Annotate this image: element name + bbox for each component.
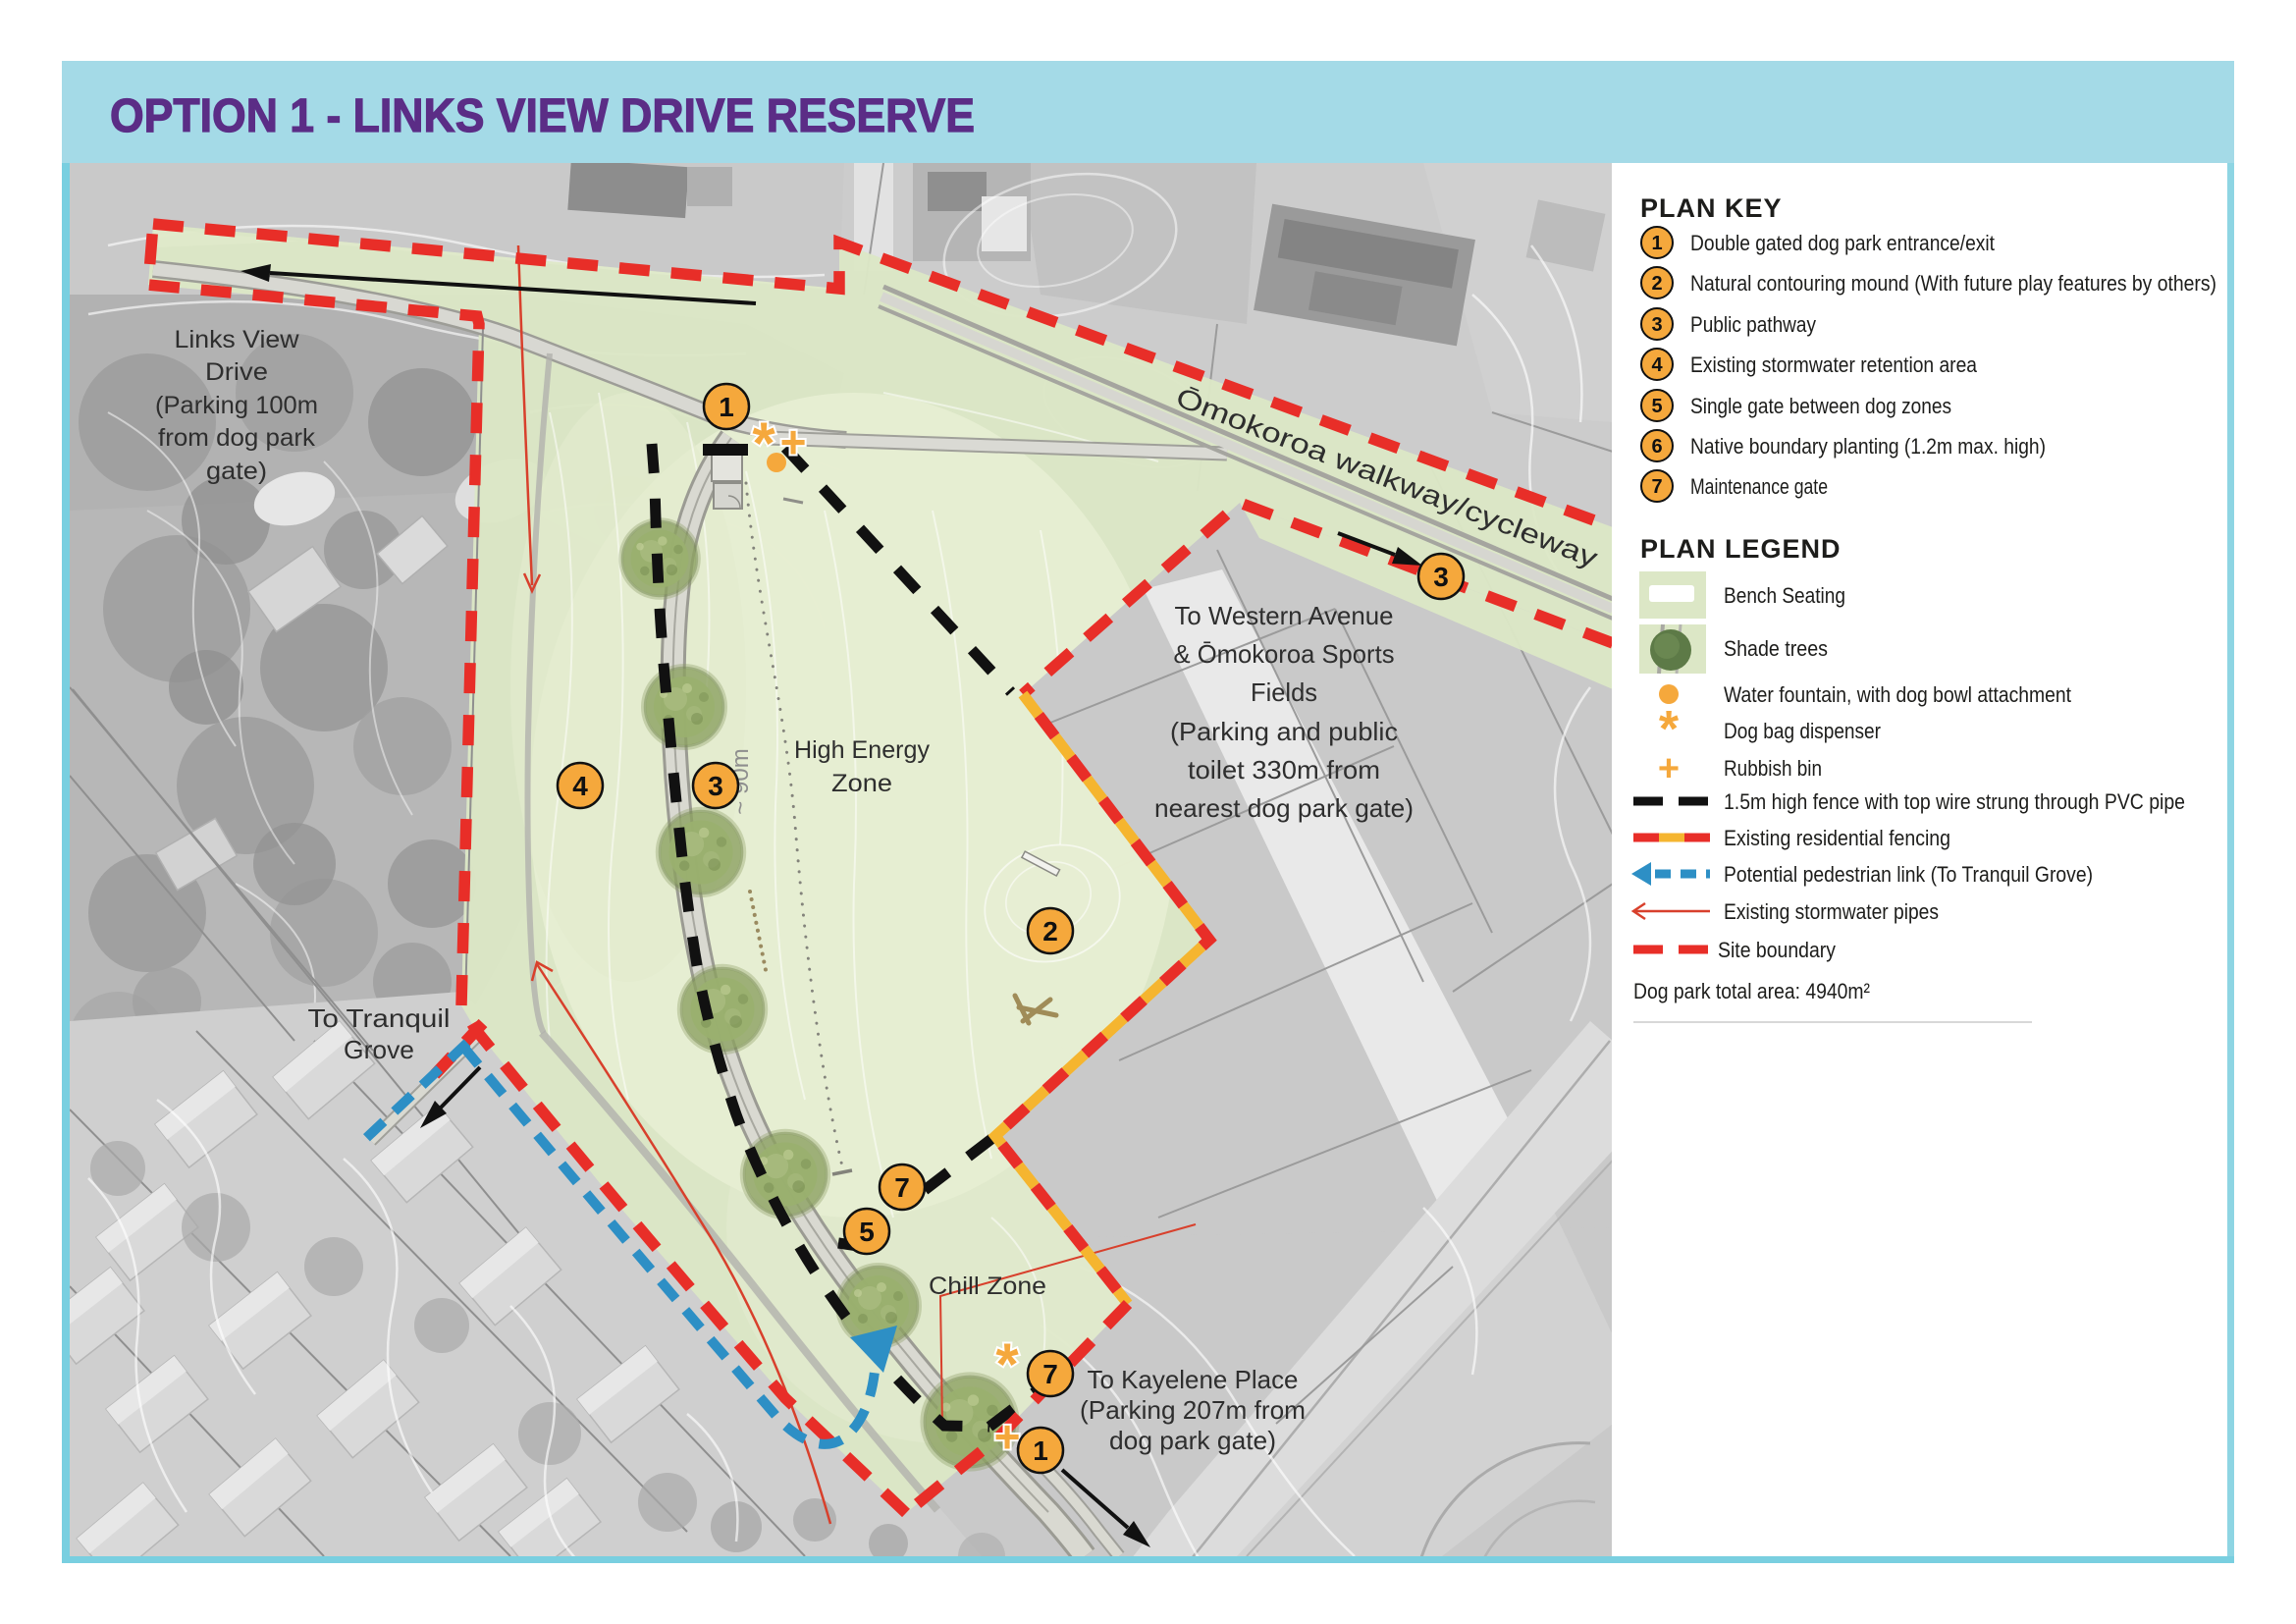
svg-text:Native boundary planting (1.2m: Native boundary planting (1.2m max. high… (1690, 434, 2046, 459)
svg-text:PLAN KEY: PLAN KEY (1640, 193, 1783, 223)
svg-text:4: 4 (572, 771, 588, 801)
svg-text:To Tranquil: To Tranquil (308, 1003, 451, 1033)
svg-text:Drive: Drive (205, 358, 268, 386)
svg-text:High Energy: High Energy (794, 736, 930, 764)
svg-text:+: + (994, 1411, 1021, 1462)
svg-text:3: 3 (1433, 562, 1449, 592)
svg-text:Bench Seating: Bench Seating (1724, 583, 1845, 608)
svg-text:Single gate between dog zones: Single gate between dog zones (1690, 394, 1951, 418)
svg-text:OPTION 1 - LINKS VIEW DRIVE RE: OPTION 1 - LINKS VIEW DRIVE RESERVE (110, 90, 975, 142)
svg-text:5: 5 (859, 1217, 875, 1247)
svg-text:Fields: Fields (1251, 677, 1317, 707)
svg-text:Existing stormwater pipes: Existing stormwater pipes (1724, 899, 1939, 924)
svg-text:Dog park total area: 4940m²: Dog park total area: 4940m² (1633, 979, 1870, 1003)
svg-text:3: 3 (1651, 314, 1662, 336)
svg-text:Maintenance gate: Maintenance gate (1690, 474, 1828, 499)
svg-text:4: 4 (1651, 354, 1663, 376)
svg-text:6: 6 (1651, 436, 1662, 458)
svg-text:Chill Zone: Chill Zone (929, 1272, 1046, 1300)
svg-text:2: 2 (1042, 916, 1058, 947)
svg-text:1: 1 (1651, 233, 1662, 254)
svg-text:7: 7 (894, 1172, 910, 1203)
svg-text:Double gated dog park entrance: Double gated dog park entrance/exit (1690, 231, 1996, 255)
svg-text:Existing residential fencing: Existing residential fencing (1724, 826, 1950, 850)
svg-text:& Ōmokoroa Sports: & Ōmokoroa Sports (1174, 639, 1395, 669)
svg-text:nearest dog park gate): nearest dog park gate) (1154, 793, 1414, 823)
svg-text:(Parking and public: (Parking and public (1170, 717, 1398, 746)
svg-text:Grove: Grove (344, 1035, 414, 1064)
svg-text:Site boundary: Site boundary (1718, 938, 1837, 962)
svg-text:*: * (995, 1331, 1019, 1397)
svg-text:Potential pedestrian link (To: Potential pedestrian link (To Tranquil G… (1724, 862, 2093, 887)
svg-text:gate): gate) (206, 458, 267, 485)
svg-text:7: 7 (1651, 476, 1662, 498)
svg-text:3: 3 (708, 771, 723, 801)
svg-text:7: 7 (1042, 1359, 1058, 1389)
svg-text:from dog park: from dog park (158, 424, 316, 452)
svg-text:Dog bag dispenser: Dog bag dispenser (1724, 719, 1881, 743)
svg-text:PLAN LEGEND: PLAN LEGEND (1640, 534, 1842, 564)
svg-text:Rubbish bin: Rubbish bin (1724, 756, 1822, 781)
svg-text:Existing stormwater retention: Existing stormwater retention area (1690, 352, 1977, 377)
svg-text:Zone: Zone (831, 770, 892, 797)
svg-text:To Western Avenue: To Western Avenue (1175, 601, 1394, 630)
svg-text:dog park gate): dog park gate) (1109, 1426, 1276, 1455)
svg-text:Shade trees: Shade trees (1724, 636, 1828, 661)
svg-text:1: 1 (719, 392, 734, 422)
svg-text:+: + (1658, 748, 1680, 789)
svg-text:Water fountain, with dog bowl: Water fountain, with dog bowl attachment (1724, 682, 2072, 707)
svg-text:5: 5 (1651, 396, 1662, 417)
svg-text:To Kayelene Place: To Kayelene Place (1088, 1365, 1299, 1394)
svg-text:Public pathway: Public pathway (1690, 312, 1817, 337)
svg-text:Natural contouring mound (With: Natural contouring mound (With future pl… (1690, 271, 2216, 296)
svg-text:(Parking 100m: (Parking 100m (155, 392, 318, 419)
svg-text:(Parking 207m from: (Parking 207m from (1080, 1395, 1306, 1425)
svg-text:1: 1 (1033, 1435, 1048, 1466)
svg-text:2: 2 (1651, 273, 1662, 295)
svg-text:Links View: Links View (175, 326, 300, 353)
svg-text:1.5m high fence with top wire: 1.5m high fence with top wire strung thr… (1724, 789, 2185, 814)
svg-text:toilet 330m from: toilet 330m from (1188, 755, 1380, 785)
